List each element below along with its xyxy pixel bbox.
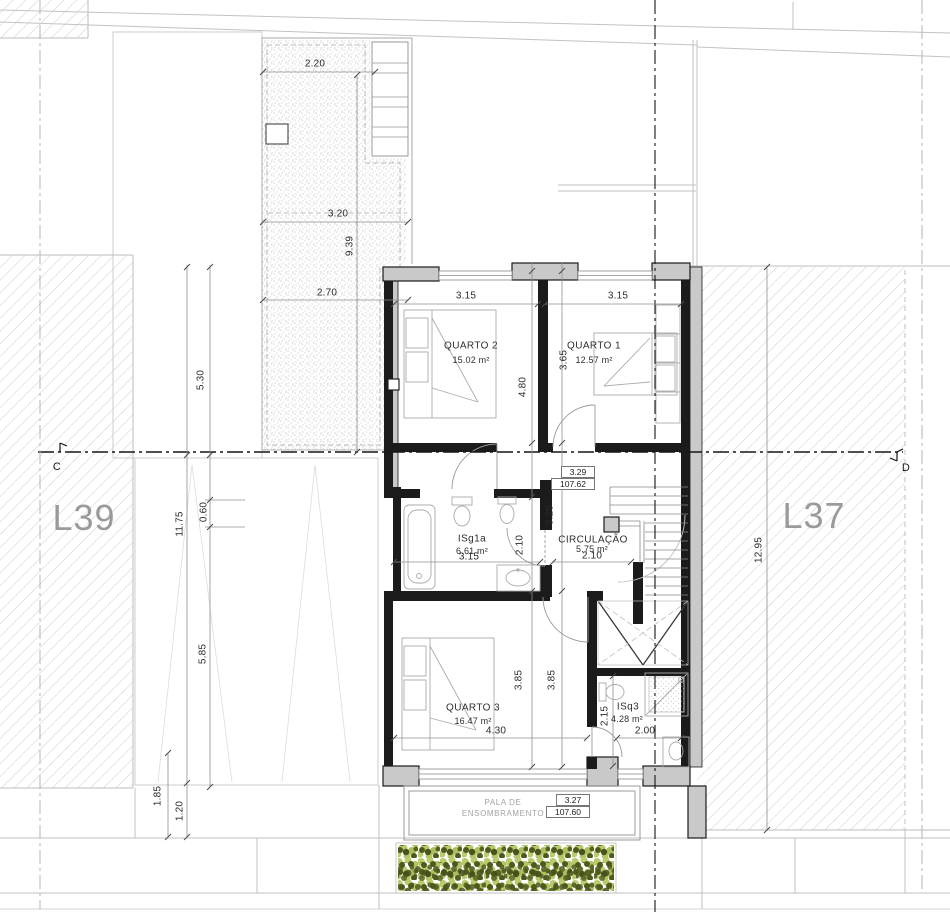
room-label-isq3: ISq3	[617, 702, 639, 713]
lot-label-l37: L37	[782, 495, 845, 537]
dim-left-060: 0.60	[199, 502, 210, 522]
patio-box	[266, 124, 288, 144]
dim-left-530: 5.30	[196, 370, 207, 390]
canopy-label: PALA DE ENSOMBRAMENTO	[462, 798, 544, 820]
hedge-vegetation	[396, 843, 616, 893]
section-letter-d: D	[902, 462, 910, 474]
dim-quarto3-width: 4.30	[486, 726, 506, 737]
toilet-isq3	[599, 683, 624, 701]
dim-hall-depth: 3.25	[545, 505, 556, 525]
canopy-label-line2: ENSOMBRAMENTO	[462, 809, 544, 820]
bidet-isg1a	[498, 497, 516, 524]
dim-isq3-depth: 2.15	[600, 706, 611, 726]
dim-left-585: 5.85	[198, 644, 209, 664]
room-label-quarto2: QUARTO 2	[444, 341, 498, 352]
dim-quarto1-width: 3.15	[608, 291, 628, 302]
room-label-quarto3: QUARTO 3	[446, 703, 500, 714]
dim-left-185: 1.85	[153, 786, 164, 806]
dim-left-120: 1.20	[175, 801, 186, 821]
lot-hatch-right	[690, 266, 950, 830]
room-label-quarto1: QUARTO 1	[567, 341, 621, 352]
level-marker-canopy: 3.27 107.60	[546, 794, 590, 818]
door-arc-isq3	[592, 727, 622, 757]
dim-left-1175: 11.75	[175, 511, 186, 536]
floorplan-drawing	[0, 0, 950, 917]
door-arc-bath	[507, 528, 545, 566]
stair-newel	[604, 517, 619, 532]
bed-quarto3	[402, 638, 494, 750]
dim-quarto3-depth-1: 3.85	[514, 670, 525, 690]
wall-box	[388, 379, 399, 390]
canopy-label-line1: PALA DE	[462, 798, 544, 809]
room-area-quarto2: 15.02 m²	[452, 355, 489, 365]
bathtub	[404, 505, 435, 589]
dim-quarto2-width: 3.15	[456, 291, 476, 302]
dim-right-1295: 12.95	[754, 537, 765, 563]
wardrobe-quarto1	[656, 305, 680, 423]
shower-isq3	[645, 673, 688, 716]
dim-patio-width-2: 3.20	[328, 209, 348, 220]
toilet-isg1a	[452, 497, 472, 526]
floor-plan: 2.20 3.20 9.39 2.70 5.30 11.75 0.60 5.85…	[0, 0, 950, 917]
level-absolute: 107.62	[551, 478, 595, 490]
dim-isq3-width: 2.00	[635, 726, 655, 737]
door-arc-stair	[618, 515, 685, 582]
lot-label-l39: L39	[52, 497, 115, 539]
room-area-circulacao: 5.75 m²	[576, 544, 608, 554]
level-absolute: 107.60	[546, 806, 590, 818]
room-area-quarto3: 16.47 m²	[454, 716, 491, 726]
level-marker-upper: 3.29 107.62	[551, 466, 595, 490]
dim-quarto3-depth-2: 3.85	[547, 670, 558, 690]
dim-quarto2-depth: 4.80	[518, 377, 529, 397]
level-relative: 3.27	[556, 794, 590, 806]
room-area-quarto1: 12.57 m²	[575, 355, 612, 365]
door-arc-quarto3	[543, 597, 588, 642]
door-arc-quarto1	[553, 405, 595, 447]
pergola-stair-strip	[372, 42, 408, 156]
section-letter-c: C	[53, 461, 61, 473]
dim-quarto1-depth: 3.65	[559, 350, 570, 370]
level-relative: 3.29	[561, 466, 595, 478]
room-label-isg1a: ISg1a	[458, 534, 486, 545]
sink-isg1a	[497, 565, 540, 591]
dim-patio-width-3: 2.70	[317, 288, 337, 299]
dim-bath-depth: 2.10	[515, 535, 526, 555]
dim-patio-width-1: 2.20	[305, 59, 325, 70]
dim-patio-length: 9.39	[345, 236, 356, 256]
room-area-isq3: 4.28 m²	[611, 714, 643, 724]
room-area-isg1a: 6.61 m²	[456, 546, 488, 556]
